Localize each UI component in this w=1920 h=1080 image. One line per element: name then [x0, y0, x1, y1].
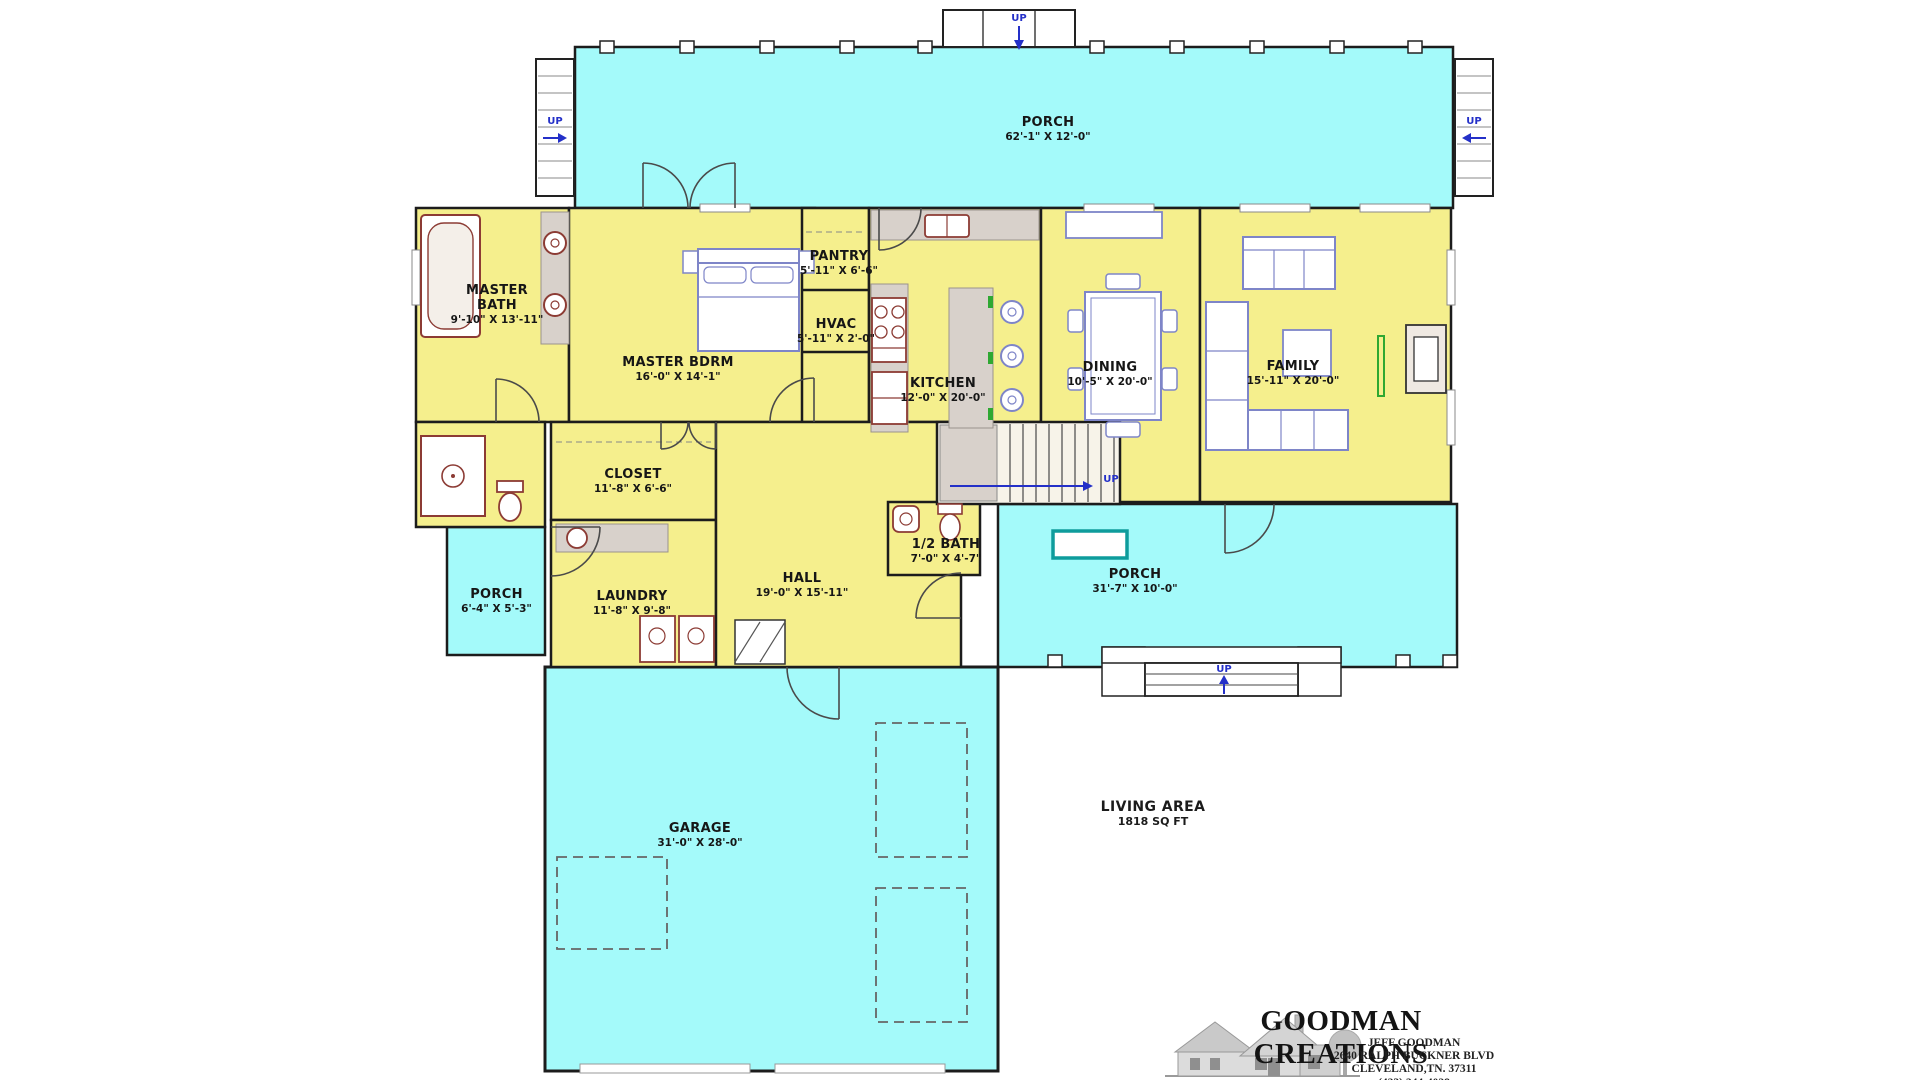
range-icon [872, 298, 906, 362]
bar-stools [1001, 301, 1023, 411]
porch-bench [1053, 531, 1127, 558]
top-porch-area [575, 41, 1453, 208]
sink-icon [544, 294, 566, 316]
sink-icon [544, 232, 566, 254]
logo-person: JEFF GOODMAN [1318, 1037, 1510, 1050]
room-pantry-hvac-strip [802, 208, 869, 422]
up-label-top-steps: UP [1000, 13, 1038, 24]
floor-plan-canvas: PORCH 62'-1" X 12'-0" MASTER BATH 9'-10"… [0, 0, 1920, 1080]
bed-icon [683, 249, 814, 351]
refrigerator-icon [872, 372, 907, 424]
up-label-left-deck: UP [536, 116, 574, 127]
hall-closet-icon [735, 620, 785, 664]
right-porch-area [998, 504, 1457, 667]
coffee-table-icon [1283, 330, 1331, 376]
toilet-icon [497, 481, 523, 521]
logo-address-block: JEFF GOODMAN 2640 RALPH BUCKNER BLVD CLE… [1318, 1037, 1510, 1080]
living-area-value: 1818 SQ FT [1073, 815, 1233, 828]
stairs-icon [937, 422, 1120, 504]
floor-plan-drawing [0, 0, 1920, 1080]
logo-phone: (423) 244-4028 [1318, 1077, 1510, 1080]
kitchen-island [949, 288, 993, 428]
left-porch-area [447, 527, 545, 655]
sink-icon [893, 506, 919, 532]
left-deck [536, 59, 574, 196]
up-label-right-deck: UP [1455, 116, 1493, 127]
logo-street: 2640 RALPH BUCKNER BLVD [1318, 1050, 1510, 1063]
laundry-sink-icon [567, 528, 587, 548]
living-area-note: LIVING AREA 1818 SQ FT [1073, 799, 1233, 828]
toilet-icon [938, 504, 962, 540]
room-closet [551, 422, 716, 520]
right-deck [1455, 59, 1493, 196]
up-label-porch-steps: UP [1204, 664, 1244, 675]
fireplace-icon [1406, 325, 1446, 393]
logo-city: CLEVELAND,TN. 37311 [1318, 1063, 1510, 1076]
up-label-stairs: UP [1096, 474, 1126, 485]
living-area-title: LIVING AREA [1073, 799, 1233, 815]
garage-area [545, 667, 998, 1073]
